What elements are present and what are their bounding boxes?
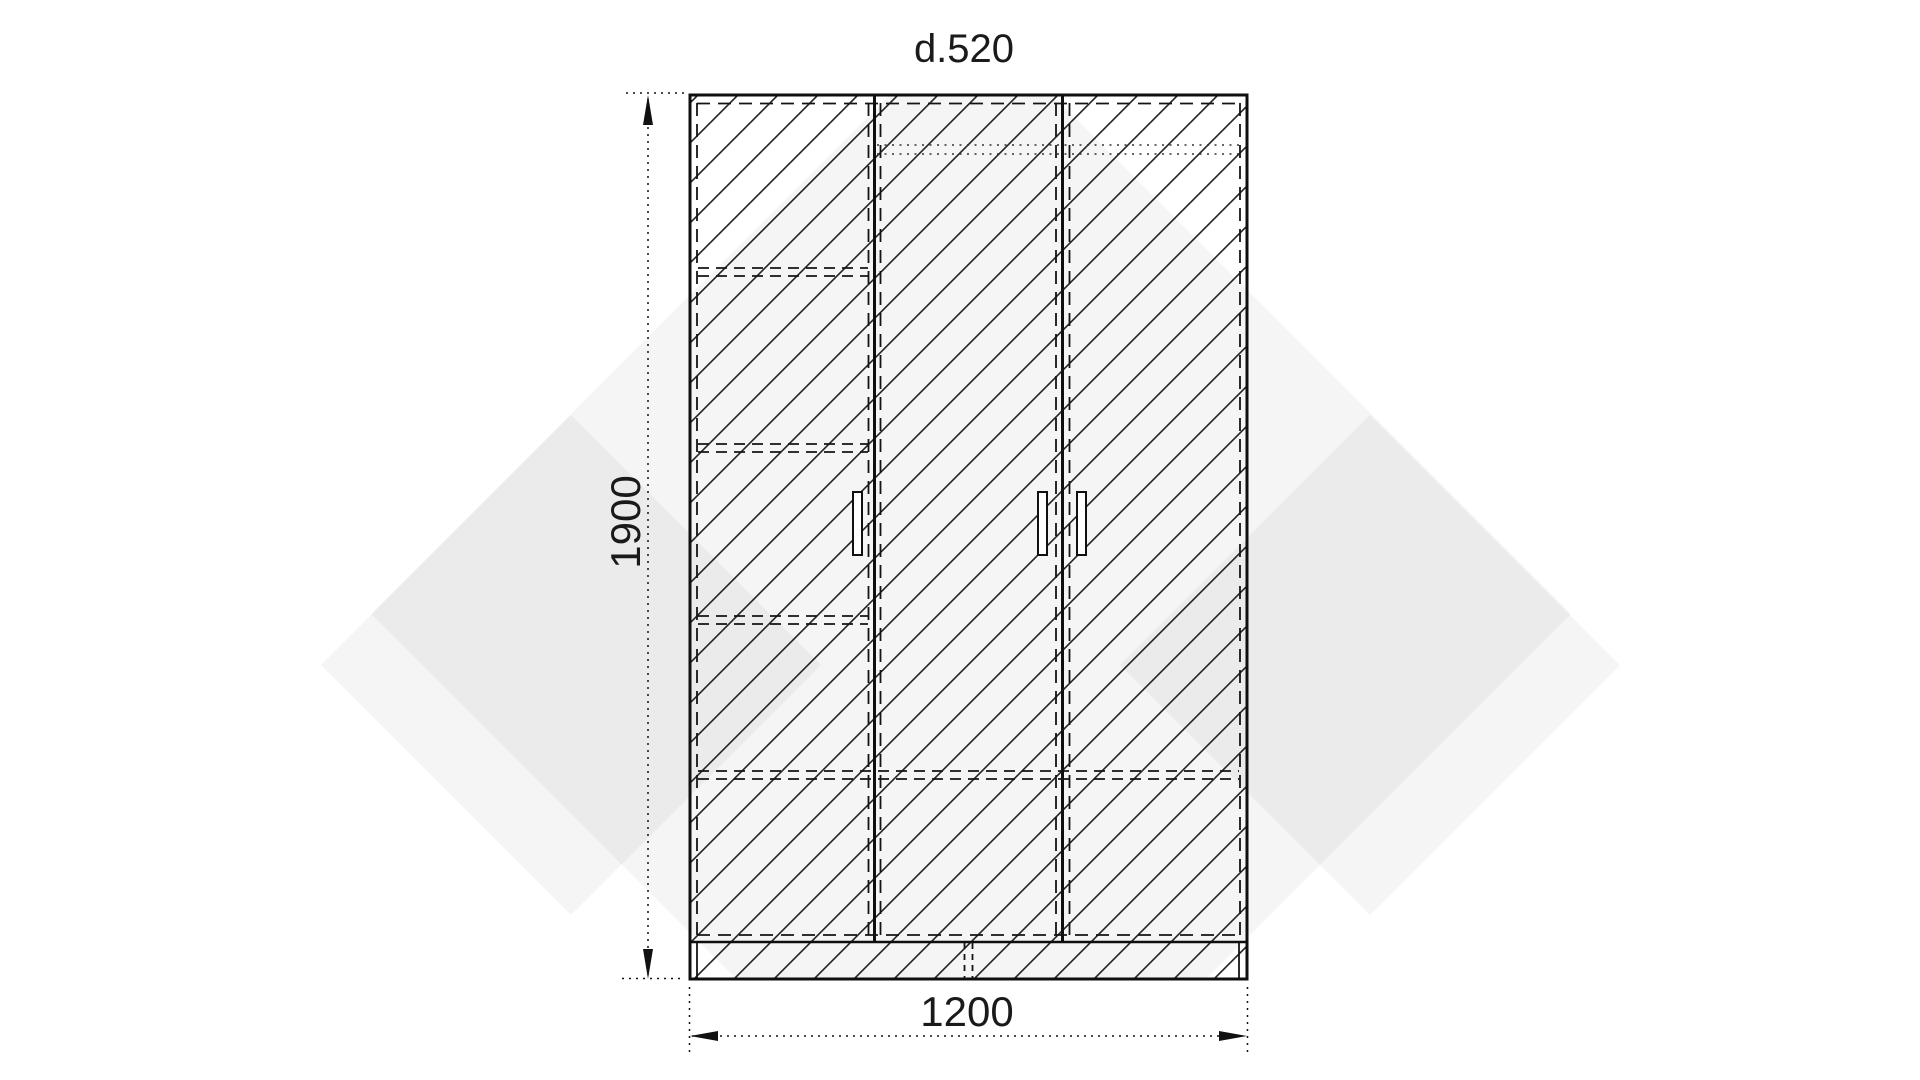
arrow-right-icon bbox=[1219, 1031, 1247, 1041]
arrow-up-icon bbox=[643, 95, 653, 125]
cabinet-body bbox=[690, 95, 1247, 979]
right-door-handle bbox=[1077, 492, 1086, 555]
wardrobe-technical-drawing-page: 1900 1200 d.520 bbox=[0, 0, 1920, 1080]
width-dimension-label: 1200 bbox=[920, 988, 1013, 1035]
arrow-left-icon bbox=[690, 1031, 718, 1041]
width-dimension: 1200 bbox=[690, 987, 1248, 1056]
arrow-down-icon bbox=[643, 949, 653, 979]
middle-door-handle bbox=[1038, 492, 1047, 555]
height-dimension-label: 1900 bbox=[602, 475, 649, 568]
wardrobe-front-view-drawing: 1900 1200 d.520 bbox=[0, 0, 1920, 1080]
left-door-handle bbox=[853, 492, 862, 555]
cabinet-hatch-fill bbox=[690, 95, 1247, 979]
depth-title-label: d.520 bbox=[914, 27, 1014, 71]
